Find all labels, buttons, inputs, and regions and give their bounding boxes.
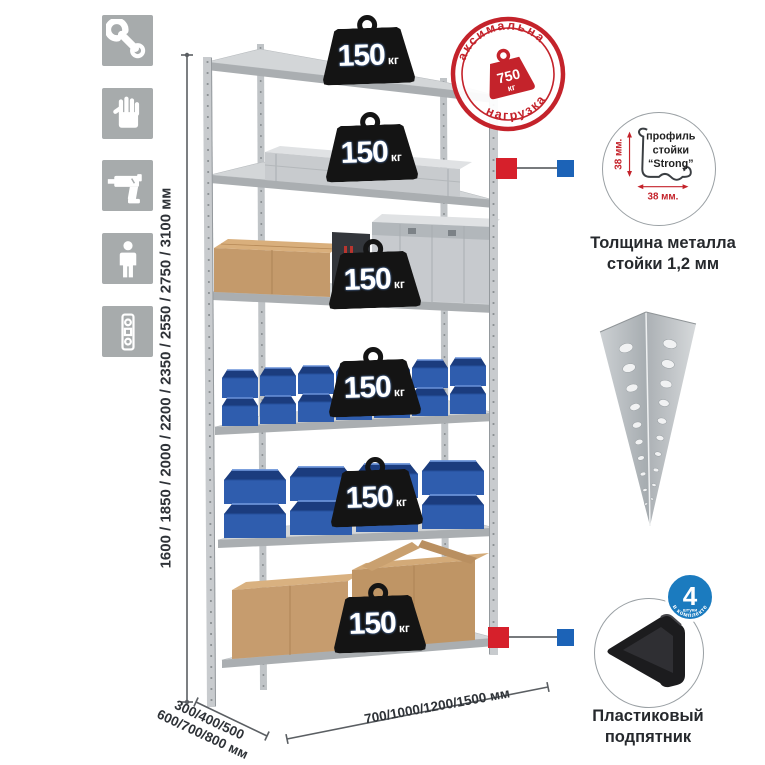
shelf-load-value: 150 <box>345 480 393 516</box>
plastic-foot-photo <box>607 615 685 687</box>
foot-caption-line1: Пластиковый <box>566 706 730 727</box>
shelf-load-badge: 150кг <box>329 455 423 527</box>
included-count-value: 4 <box>683 581 698 611</box>
profile-detail-circle: 38 мм. 38 мм. профиль стойки “Strong” <box>602 112 716 226</box>
shelf-load-badge: 150кг <box>324 110 418 182</box>
shelf-load-value: 150 <box>348 606 396 642</box>
shelving-infographic: 150кг 150кг 150кг 150кг 150кг 150кг макс… <box>0 0 765 765</box>
profile-dim-horizontal: 38 мм. <box>647 191 678 202</box>
profile-caption: Толщина металла стойки 1,2 мм <box>575 233 751 274</box>
profile-dim-vertical: 38 мм. <box>614 139 625 170</box>
shelf-load-badge: 150кг <box>332 581 426 653</box>
profile-connector <box>496 158 574 179</box>
foot-caption: Пластиковый подпятник <box>566 706 730 747</box>
shelf-load-unit: кг <box>394 385 405 399</box>
shelf-load-badge: 150кг <box>321 13 415 85</box>
profile-caption-line2: стойки 1,2 мм <box>575 254 751 275</box>
shelf-load-unit: кг <box>396 495 407 509</box>
shelf-load-value: 150 <box>343 370 391 406</box>
height-dimension-label: 1600 / 1850 / 2000 / 2200 / 2350 / 2550 … <box>158 188 175 569</box>
foot-caption-line2: подпятник <box>566 727 730 748</box>
profile-label-1: профиль <box>646 131 696 143</box>
shelf-load-value: 150 <box>340 135 388 171</box>
shelf-load-value: 150 <box>337 38 385 74</box>
shelf-load-unit: кг <box>399 621 410 635</box>
shelf-load-value: 150 <box>343 262 391 298</box>
shelf-load-unit: кг <box>391 150 402 164</box>
shelf-load-unit: кг <box>394 277 405 291</box>
shelf-load-badge: 150кг <box>327 345 421 417</box>
shelf-load-unit: кг <box>388 53 399 67</box>
profile-caption-line1: Толщина металла <box>575 233 751 254</box>
profile-label-2: стойки <box>653 144 689 156</box>
max-load-stamp: максимальная нагрузка 750 кг <box>442 8 574 140</box>
profile-label-3: “Strong” <box>648 158 694 170</box>
perforated-corner-post <box>586 300 714 532</box>
included-count-badge: 4 штуки в комплекте <box>664 571 716 623</box>
foot-connector <box>488 627 574 648</box>
shelf-load-badge: 150кг <box>327 237 421 309</box>
